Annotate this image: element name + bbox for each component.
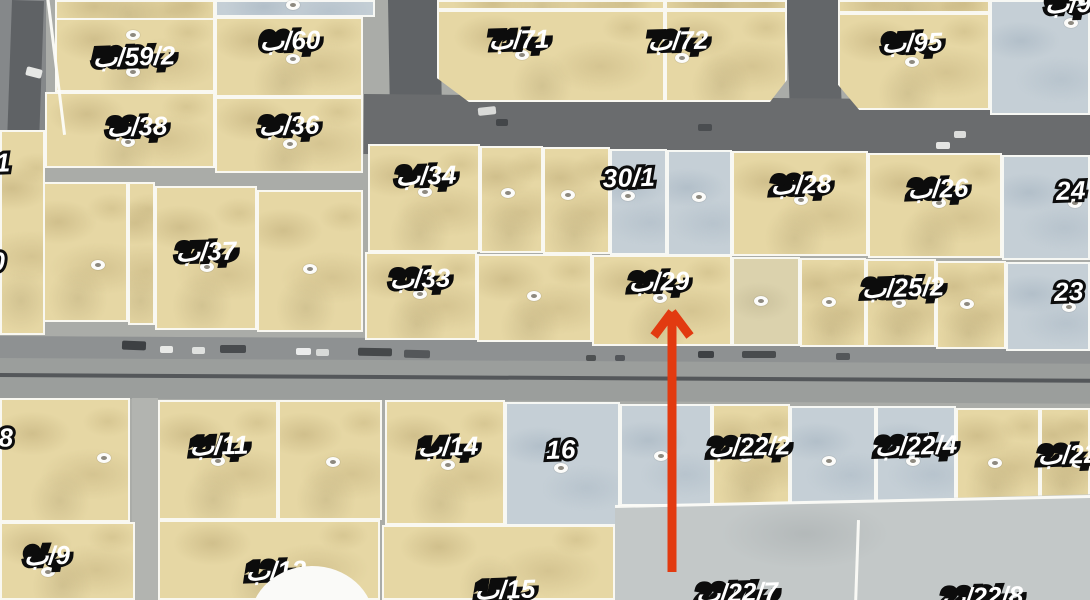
parcel-label: ب/11 — [189, 429, 249, 462]
map-parcel[interactable] — [543, 147, 610, 254]
edge-parcel-label: ب/22/8 — [940, 580, 1023, 600]
parcel-label: ب/36 — [258, 109, 320, 142]
car — [160, 346, 173, 353]
parcel-centroid-marker — [501, 188, 515, 198]
red-arrow-annotation — [637, 300, 707, 580]
road-segment — [786, 0, 842, 104]
map-parcel[interactable] — [35, 182, 128, 322]
map-parcel[interactable] — [437, 0, 665, 10]
parcel-centroid-marker — [822, 297, 836, 307]
parcel-centroid-marker — [326, 457, 340, 467]
parcel-label: ب/22/4 — [874, 429, 957, 463]
map-parcel[interactable] — [437, 10, 665, 102]
car — [192, 347, 205, 354]
parcel-label: ب/71 — [488, 23, 550, 56]
parcel-centroid-marker — [91, 260, 105, 270]
car — [358, 348, 392, 357]
edge-parcel-label: ب/9 — [1044, 0, 1090, 20]
parcel-centroid-marker — [692, 192, 706, 202]
edge-parcel-label: ب/22 — [1037, 438, 1090, 471]
parcel-label: ب/95 — [881, 26, 943, 59]
parcel-centroid-marker — [527, 291, 541, 301]
road-segment — [388, 0, 442, 106]
parcel-centroid-marker — [960, 299, 974, 309]
parcel-label: 24 — [1056, 175, 1087, 207]
parcel-label: ب/72 — [647, 24, 709, 57]
map-parcel[interactable] — [55, 0, 215, 20]
car — [742, 351, 776, 358]
car — [220, 345, 246, 353]
car — [936, 142, 950, 149]
car — [954, 131, 966, 138]
parcel-label: ب/59/2 — [92, 40, 175, 74]
map-parcel[interactable] — [0, 398, 130, 522]
road-segment — [132, 398, 158, 600]
parcel-centroid-marker — [286, 0, 300, 10]
map-parcel[interactable] — [665, 0, 787, 10]
parcel-label: 23 — [1054, 276, 1085, 308]
parcel-centroid-marker — [822, 456, 836, 466]
satellite-parcel-map[interactable]: ب/59/2ب/60ب/38ب/36ب/37ب/71ب/72ب/95ب/3430… — [0, 0, 1090, 600]
parcel-centroid-marker — [561, 190, 575, 200]
edge-parcel-label: 0 — [0, 246, 6, 278]
parcel-label: ب/38 — [106, 110, 168, 143]
parcel-label: ب/9 — [23, 540, 70, 573]
parcel-centroid-marker — [126, 30, 140, 40]
car — [316, 349, 329, 356]
map-parcel[interactable] — [956, 408, 1040, 504]
car — [404, 350, 430, 358]
car — [296, 348, 311, 355]
edge-parcel-label: 1 — [0, 147, 11, 179]
parcel-centroid-marker — [97, 453, 111, 463]
map-parcel[interactable] — [480, 146, 543, 253]
map-parcel[interactable] — [128, 182, 155, 325]
parcel-label: 30/1 — [602, 162, 656, 195]
car — [615, 355, 625, 361]
parcel-label: ب/29 — [628, 265, 690, 298]
parcel-centroid-marker — [303, 264, 317, 274]
map-parcel[interactable] — [838, 0, 990, 13]
road-segment — [7, 0, 44, 135]
car — [836, 353, 850, 360]
parcel-label: ب/14 — [417, 430, 479, 463]
car — [122, 341, 146, 351]
edge-parcel-label: 8 — [0, 422, 14, 454]
parcel-label: ب/22/2 — [707, 430, 790, 464]
parcel-label: ب/37 — [175, 235, 237, 268]
map-parcel[interactable] — [257, 190, 363, 332]
parcel-centroid-marker — [988, 458, 1002, 468]
parcel-label: ب/33 — [389, 262, 451, 295]
parcel-label: 16 — [546, 434, 577, 466]
parcel-centroid-marker — [754, 296, 768, 306]
parcel-label: ب/15 — [474, 573, 536, 600]
car — [586, 355, 596, 361]
parcel-label: ب/28 — [770, 168, 832, 201]
red-arrow-path — [654, 312, 690, 572]
map-parcel[interactable] — [667, 150, 732, 256]
car — [698, 124, 712, 131]
car — [496, 119, 508, 126]
parcel-label: ب/34 — [395, 159, 457, 192]
parcel-label: ب/60 — [259, 24, 321, 57]
parcel-label: ب/25/2 — [861, 271, 944, 305]
parcel-label: ب/26 — [907, 172, 969, 205]
edge-parcel-label: ب/22/7 — [695, 576, 778, 600]
